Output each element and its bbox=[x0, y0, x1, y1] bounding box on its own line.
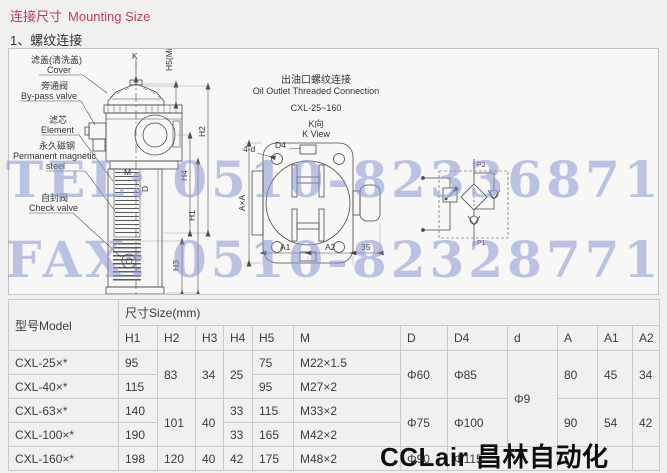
column-header-h5: H5 bbox=[253, 326, 294, 351]
dim-h1: H1 bbox=[187, 210, 197, 221]
rib-top-cross bbox=[297, 177, 319, 183]
table-cell: 175 bbox=[253, 447, 294, 471]
table-cell: 101 bbox=[158, 399, 196, 447]
dim-k: K bbox=[132, 51, 138, 61]
dim-axa: A×A bbox=[237, 195, 247, 212]
outlet-title-en: Oil Outlet Threaded Connection bbox=[253, 86, 379, 96]
model-cell: CXL-63×* bbox=[9, 399, 119, 423]
table-row: CXL-160×*1981204042175M48×2Φ90Φ115 bbox=[9, 447, 660, 471]
table-cell: Φ60 bbox=[401, 351, 448, 399]
table-cell: 45 bbox=[598, 351, 633, 399]
table-cell: 80 bbox=[558, 351, 598, 399]
model-cell: CXL-40×* bbox=[9, 375, 119, 399]
column-header-m: M bbox=[294, 326, 401, 351]
outlet-port-outer bbox=[135, 115, 175, 155]
dim-h3: H3 bbox=[171, 260, 181, 271]
dim-d: D bbox=[140, 186, 150, 192]
column-header-h3: H3 bbox=[196, 326, 224, 351]
technical-drawing: 滤盖(清洗盖) Cover 旁通阀 By-pass valve 滤芯 Eleme… bbox=[9, 49, 658, 294]
dim-h5: H5(Min.) bbox=[164, 49, 174, 71]
dimension-table-wrap: 型号Model尺寸Size(mm)H1H2H3H4H5MDD4dAA1A2 CX… bbox=[8, 299, 660, 471]
table-cell: Φ90 bbox=[401, 447, 448, 471]
k-view-label-zh: K向 bbox=[308, 118, 323, 129]
column-header-a2: A2 bbox=[633, 326, 660, 351]
column-header-a1: A1 bbox=[598, 326, 633, 351]
bypass-housing bbox=[89, 123, 106, 139]
dim-a2: A2 bbox=[325, 242, 336, 252]
cover-flange bbox=[104, 105, 182, 113]
table-cell: Φ9 bbox=[508, 351, 558, 447]
drawing-panel: 滤盖(清洗盖) Cover 旁通阀 By-pass valve 滤芯 Eleme… bbox=[8, 48, 659, 295]
dim-h4: H4 bbox=[179, 170, 189, 181]
column-header-d: d bbox=[508, 326, 558, 351]
table-cell: 34 bbox=[196, 351, 224, 399]
table-cell: 90 bbox=[558, 399, 598, 447]
magnet-label-zh: 永久磁钢 bbox=[39, 140, 75, 151]
dim-h2: H2 bbox=[197, 126, 207, 137]
table-body: CXL-25×*9583342575M22×1.5Φ60Φ85Φ9804534C… bbox=[9, 351, 660, 471]
rib-bottom-cross bbox=[297, 223, 319, 229]
outlet-port-inner bbox=[143, 123, 167, 147]
table-row: CXL-25×*9583342575M22×1.5Φ60Φ85Φ9804534 bbox=[9, 351, 660, 375]
column-header-h4: H4 bbox=[224, 326, 253, 351]
filter-head bbox=[106, 113, 182, 161]
bypass-label-en: By-pass valve bbox=[21, 91, 77, 101]
port-p1: P1 bbox=[477, 240, 486, 247]
table-cell bbox=[508, 447, 558, 471]
table-head: 型号Model尺寸Size(mm)H1H2H3H4H5MDD4dAA1A2 bbox=[9, 300, 660, 351]
flange-boss bbox=[266, 161, 350, 245]
k-view-dimensions: 4-d D4 A×A A1 A2 35 bbox=[237, 140, 380, 265]
table-cell: 165 bbox=[253, 423, 294, 447]
table-cell: 190 bbox=[119, 423, 158, 447]
magnet-label-en2: steel bbox=[46, 161, 65, 171]
symbol-envelope bbox=[439, 171, 508, 238]
table-cell: M27×2 bbox=[294, 375, 401, 399]
section-title: 1、螺纹连接 bbox=[10, 30, 82, 49]
table-cell bbox=[598, 447, 633, 471]
page-title-en: Mounting Size bbox=[68, 9, 150, 24]
model-range: CXL-25~160 bbox=[291, 103, 342, 113]
table-cell: M48×2 bbox=[294, 447, 401, 471]
column-header-d: D bbox=[401, 326, 448, 351]
table-cell: 54 bbox=[598, 399, 633, 447]
table-cell: 33 bbox=[224, 399, 253, 423]
knob-neck bbox=[353, 191, 360, 215]
table-cell: Φ100 bbox=[448, 399, 508, 447]
table-cell bbox=[558, 447, 598, 471]
column-header-a: A bbox=[558, 326, 598, 351]
port-p2: P2 bbox=[477, 162, 486, 169]
table-cell: M22×1.5 bbox=[294, 351, 401, 375]
table-cell: 42 bbox=[633, 399, 660, 447]
model-column-header: 型号Model bbox=[9, 300, 119, 351]
model-cell: CXL-100×* bbox=[9, 423, 119, 447]
table-cell: Φ75 bbox=[401, 399, 448, 447]
table-cell: 120 bbox=[158, 447, 196, 471]
bolt-hole bbox=[272, 154, 283, 165]
filter-section-figure bbox=[85, 59, 182, 294]
bypass-check-valve bbox=[490, 190, 498, 198]
table-cell bbox=[633, 447, 660, 471]
rib-bottom-left bbox=[292, 209, 297, 241]
model-cell: CXL-25×* bbox=[9, 351, 119, 375]
table-cell: 95 bbox=[119, 351, 158, 375]
table-cell: 75 bbox=[253, 351, 294, 375]
top-boss bbox=[300, 145, 316, 154]
table-cell: 115 bbox=[253, 399, 294, 423]
size-group-header: 尺寸Size(mm) bbox=[119, 300, 660, 326]
table-cell: 95 bbox=[253, 375, 294, 399]
table-cell: Φ115 bbox=[448, 447, 508, 471]
bottom-cap bbox=[106, 287, 164, 294]
dimension-table: 型号Model尺寸Size(mm)H1H2H3H4H5MDD4dAA1A2 CX… bbox=[8, 299, 660, 471]
table-cell: 40 bbox=[196, 399, 224, 447]
table-cell: 115 bbox=[119, 375, 158, 399]
rib-bottom-right bbox=[319, 209, 324, 241]
table-cell: 140 bbox=[119, 399, 158, 423]
table-cell: Φ85 bbox=[448, 351, 508, 399]
table-cell: M33×2 bbox=[294, 399, 401, 423]
k-view-titles: 出油口螺纹连接 Oil Outlet Threaded Connection C… bbox=[253, 73, 379, 139]
k-view-label-en: K View bbox=[302, 129, 330, 139]
cover-label-zh: 滤盖(清洗盖) bbox=[31, 54, 82, 65]
dim-m: M bbox=[124, 167, 131, 177]
page-title-zh: 连接尺寸 bbox=[10, 9, 62, 24]
column-header-h1: H1 bbox=[119, 326, 158, 351]
table-cell: 42 bbox=[224, 447, 253, 471]
check-valve-label-en: Check valve bbox=[29, 203, 78, 213]
page-title: 连接尺寸Mounting Size bbox=[10, 6, 150, 25]
element-label-zh: 滤芯 bbox=[49, 114, 67, 125]
check-valve-label-zh: 自封阀 bbox=[41, 192, 68, 203]
check-valve-symbol bbox=[470, 216, 478, 224]
magnet-label-en1: Permanent magnetic bbox=[13, 151, 97, 161]
table-cell: 34 bbox=[633, 351, 660, 399]
head-window bbox=[173, 121, 180, 147]
element-label-en: Element bbox=[41, 125, 75, 135]
table-cell: 83 bbox=[158, 351, 196, 399]
table-row: CXL-63×*1401014033115M33×2Φ75Φ100905442 bbox=[9, 399, 660, 423]
column-header-d4: D4 bbox=[448, 326, 508, 351]
rib-top-right bbox=[319, 165, 324, 197]
hydraulic-symbol: P2 P1 bbox=[422, 159, 509, 247]
table-cell: 40 bbox=[196, 447, 224, 471]
table-cell: 25 bbox=[224, 351, 253, 399]
table-cell: M42×2 bbox=[294, 423, 401, 447]
side-tab bbox=[252, 171, 263, 235]
cover-label-en: Cover bbox=[47, 65, 71, 75]
mounting-flange bbox=[110, 161, 178, 169]
bypass-label-zh: 旁通阀 bbox=[41, 80, 68, 91]
table-cell: 33 bbox=[224, 423, 253, 447]
rib-top-left bbox=[292, 165, 297, 197]
knob-body bbox=[360, 185, 380, 221]
model-cell: CXL-160×* bbox=[9, 447, 119, 471]
bolt-hole bbox=[334, 154, 345, 165]
dim-a1: A1 bbox=[280, 242, 291, 252]
catalog-page: 连接尺寸Mounting Size 1、螺纹连接 bbox=[0, 0, 667, 473]
filter-section-labels: 滤盖(清洗盖) Cover 旁通阀 By-pass valve 滤芯 Eleme… bbox=[13, 54, 121, 257]
dim-35: 35 bbox=[361, 242, 371, 252]
table-cell: 198 bbox=[119, 447, 158, 471]
outlet-title-zh: 出油口螺纹连接 bbox=[281, 73, 351, 86]
column-header-h2: H2 bbox=[158, 326, 196, 351]
dim-d4: D4 bbox=[275, 140, 286, 150]
